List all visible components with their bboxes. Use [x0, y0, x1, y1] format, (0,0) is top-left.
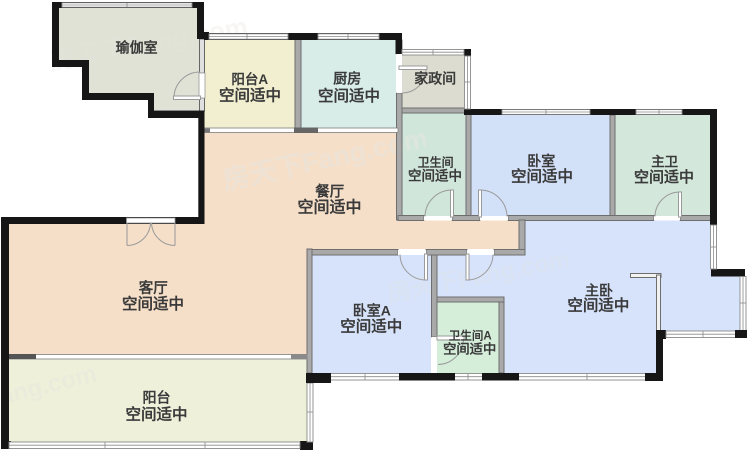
svg-text:主卫: 主卫	[651, 154, 678, 170]
svg-text:空间适中: 空间适中	[511, 167, 573, 186]
svg-text:空间适中: 空间适中	[443, 341, 496, 357]
svg-text:卧室: 卧室	[527, 153, 555, 169]
svg-text:空间适中: 空间适中	[219, 86, 281, 105]
svg-text:空间适中: 空间适中	[567, 296, 629, 315]
svg-text:阳台A: 阳台A	[231, 71, 268, 87]
svg-text:卫生间A: 卫生间A	[449, 329, 492, 343]
svg-text:主卧: 主卧	[585, 282, 613, 298]
svg-text:空间适中: 空间适中	[340, 316, 402, 335]
svg-text:卫生间: 卫生间	[418, 155, 454, 170]
svg-text:客厅: 客厅	[138, 279, 168, 297]
svg-text:瑜伽室: 瑜伽室	[116, 40, 158, 56]
svg-text:空间适中: 空间适中	[318, 86, 380, 105]
svg-text:空间适中: 空间适中	[634, 168, 694, 186]
svg-text:餐厅: 餐厅	[315, 182, 344, 200]
svg-text:空间适中: 空间适中	[297, 198, 361, 217]
svg-text:卧室A: 卧室A	[353, 303, 391, 319]
svg-text:空间适中: 空间适中	[408, 168, 462, 184]
svg-text:家政间: 家政间	[414, 71, 456, 87]
svg-text:厨房: 厨房	[333, 71, 361, 87]
svg-text:空间适中: 空间适中	[122, 294, 184, 313]
svg-text:阳台: 阳台	[143, 390, 171, 406]
svg-text:空间适中: 空间适中	[125, 404, 187, 423]
